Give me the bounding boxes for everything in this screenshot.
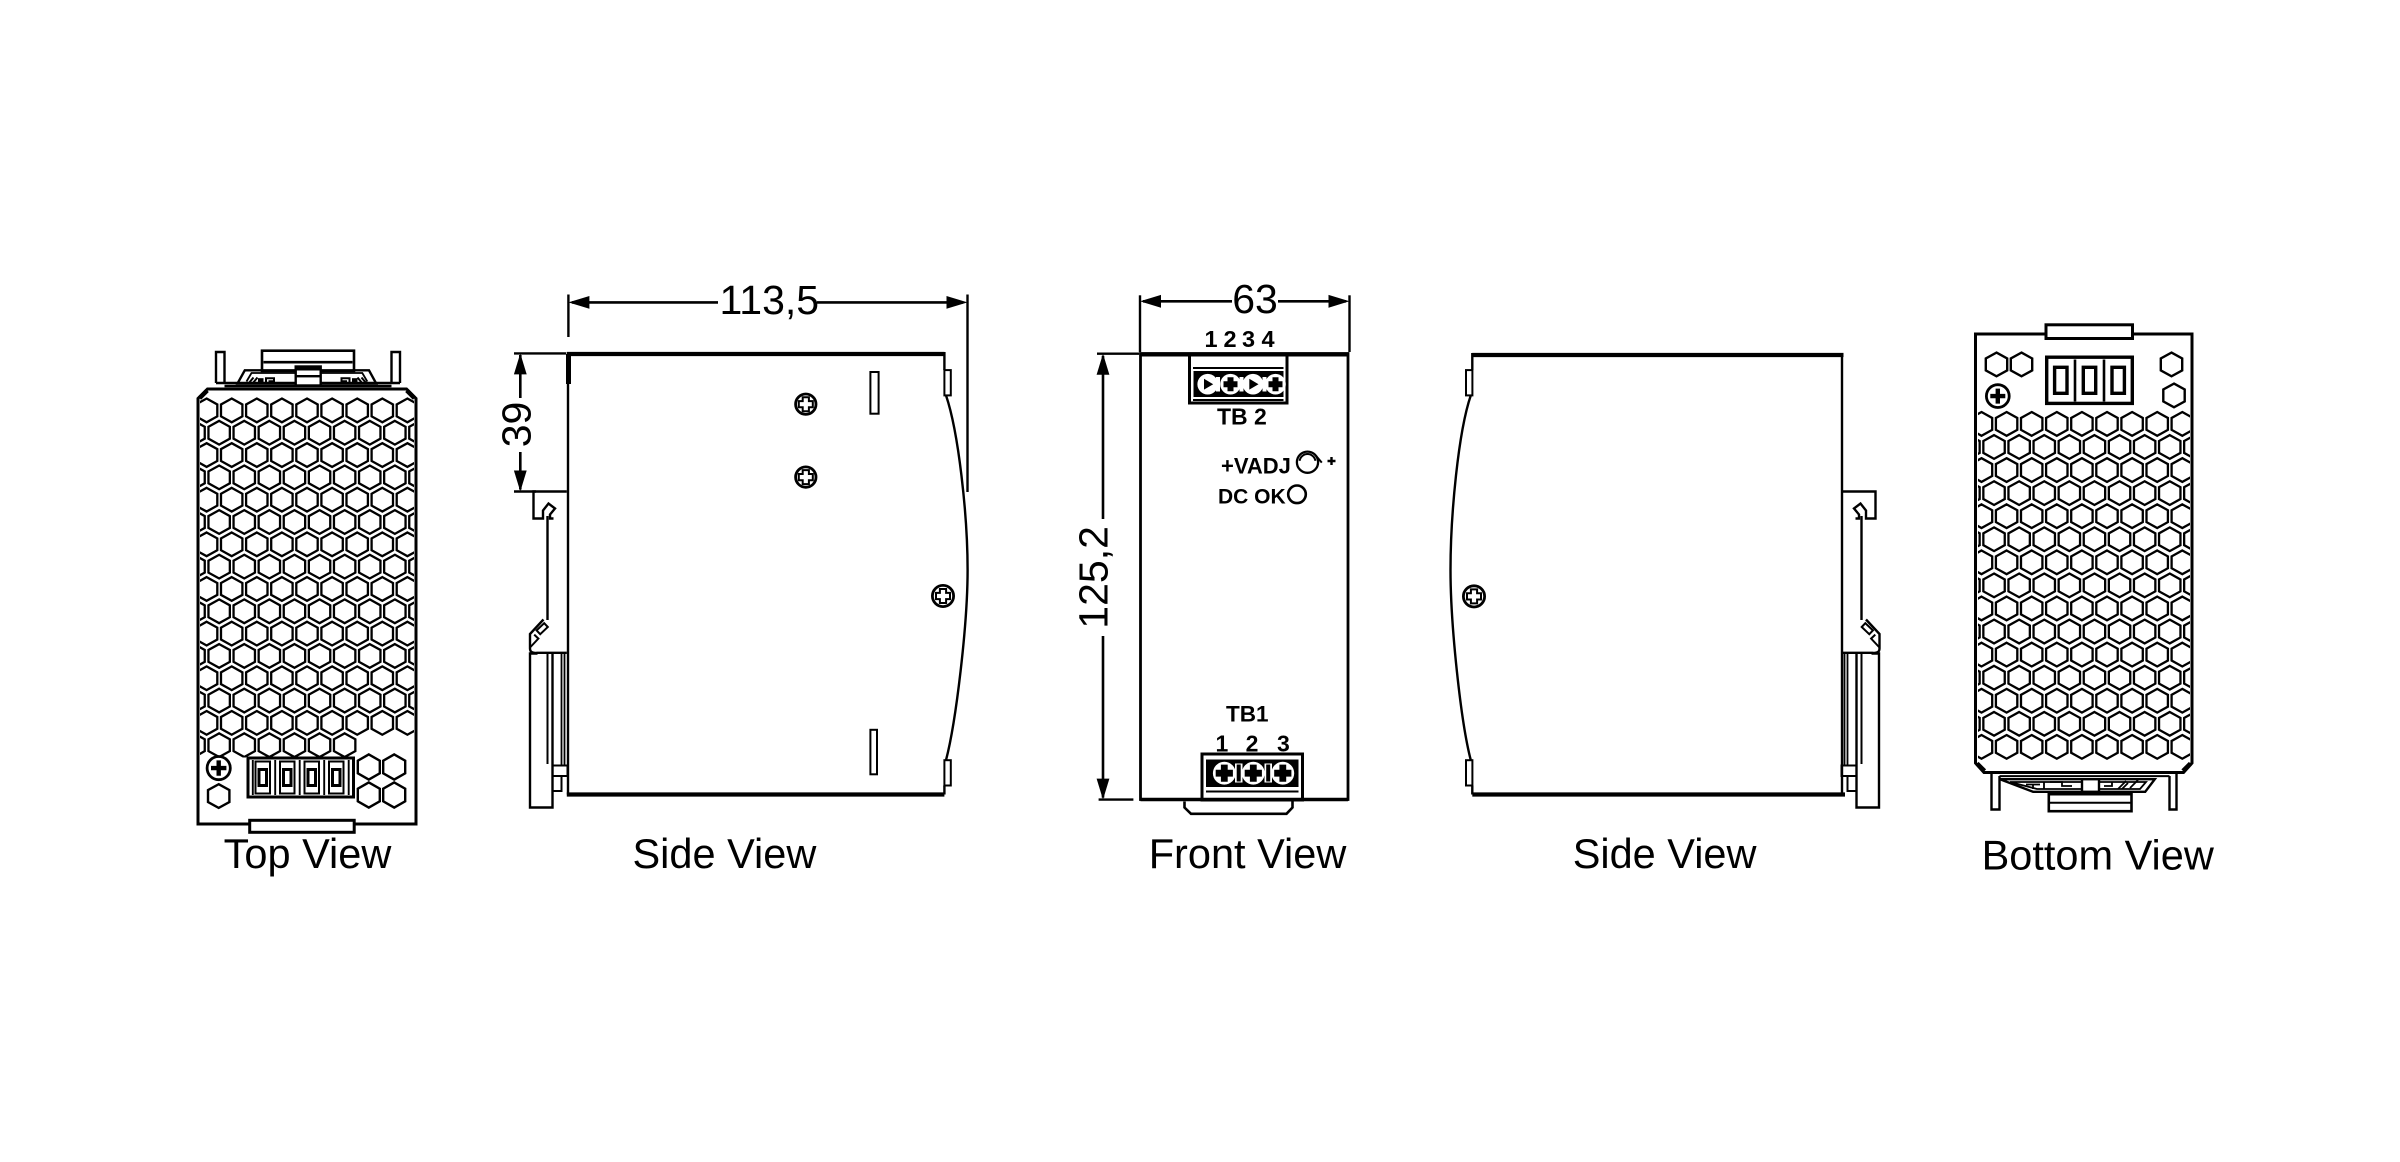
svg-text:125,2: 125,2 <box>1070 526 1116 629</box>
svg-text:Top View: Top View <box>224 830 393 877</box>
svg-text:63: 63 <box>1232 276 1278 322</box>
svg-text:2: 2 <box>1223 326 1236 352</box>
svg-text:Front View: Front View <box>1149 830 1348 877</box>
svg-text:Side View: Side View <box>1573 830 1758 877</box>
svg-text:3: 3 <box>1277 730 1290 756</box>
svg-text:TB 2: TB 2 <box>1217 403 1267 429</box>
svg-text:TB1: TB1 <box>1226 701 1269 726</box>
svg-text:Side View: Side View <box>633 830 818 877</box>
svg-text:+VADJ: +VADJ <box>1221 453 1291 478</box>
svg-text:39: 39 <box>493 402 539 448</box>
svg-text:1: 1 <box>1216 730 1229 756</box>
svg-text:1: 1 <box>1204 326 1217 352</box>
svg-text:113,5: 113,5 <box>720 277 820 323</box>
svg-text:3: 3 <box>1242 326 1255 352</box>
svg-text:2: 2 <box>1246 730 1259 756</box>
svg-text:DC OK: DC OK <box>1218 485 1286 508</box>
svg-text:4: 4 <box>1261 326 1274 352</box>
svg-text:Bottom View: Bottom View <box>1982 832 2215 879</box>
